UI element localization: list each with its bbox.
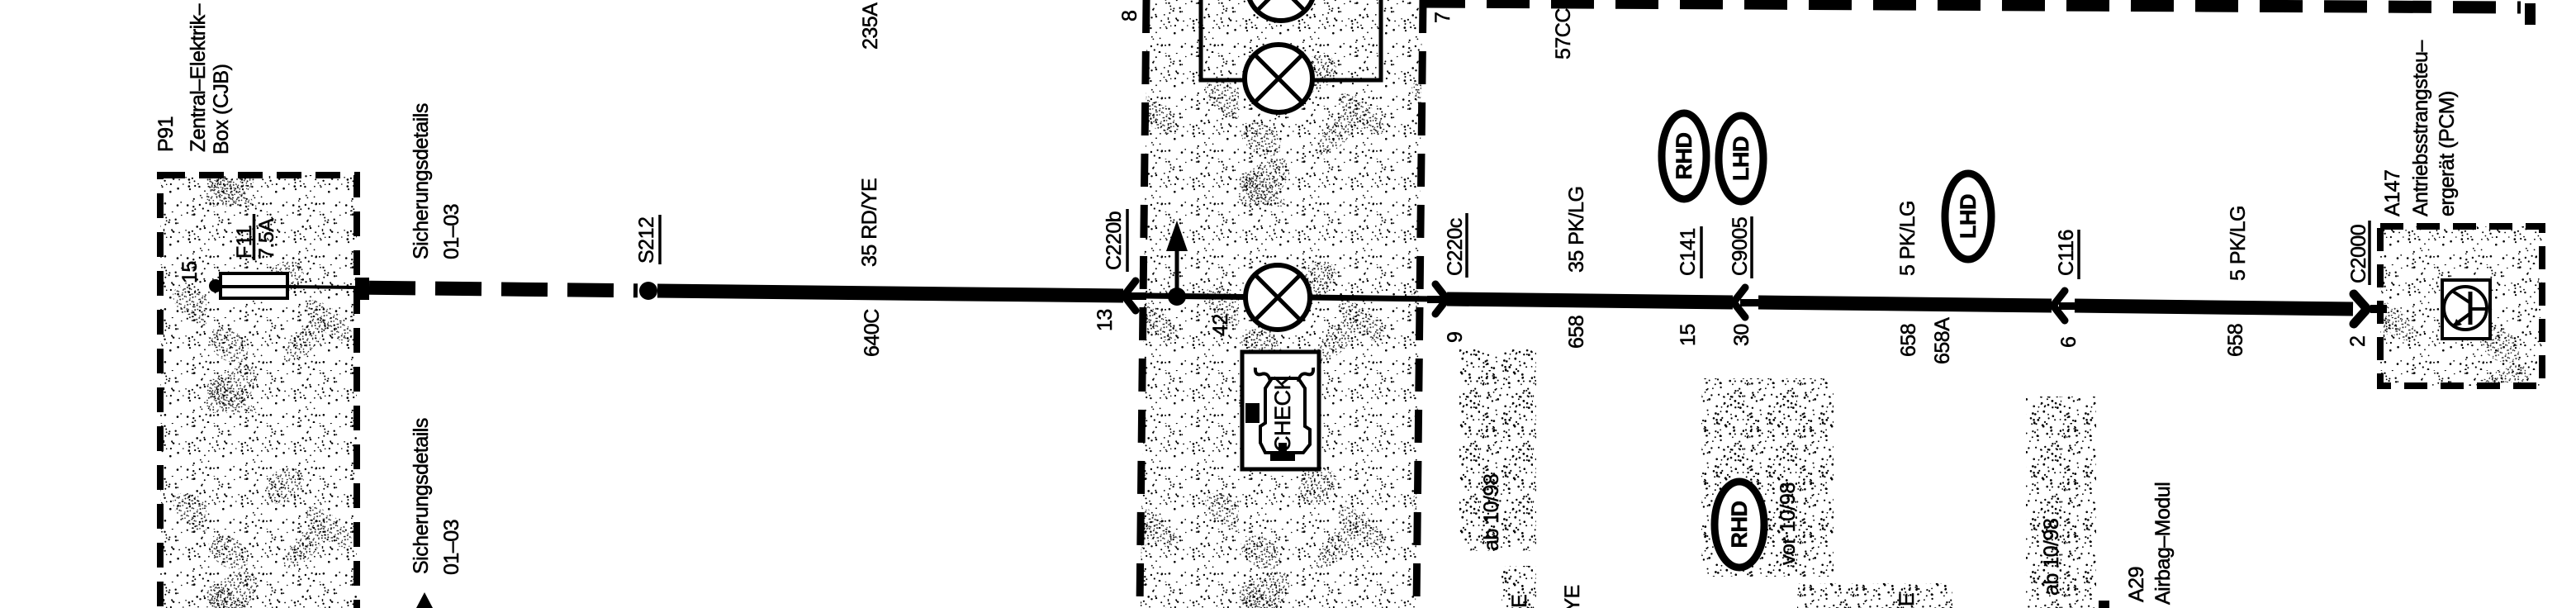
svg-text:6: 6 — [2057, 337, 2080, 348]
svg-text:5 PK/LG: 5 PK/LG — [2227, 206, 2250, 281]
svg-text:Sicherungsdetails: Sicherungsdetails — [410, 103, 433, 259]
svg-text:C116: C116 — [2055, 230, 2078, 276]
svg-text:A147: A147 — [2381, 170, 2404, 216]
svg-text:658: 658 — [1897, 324, 1920, 357]
svg-text:ergerät (PCM): ergerät (PCM) — [2436, 91, 2459, 216]
svg-text:CHECK: CHECK — [1270, 375, 1295, 452]
svg-text:RHD: RHD — [1672, 133, 1696, 180]
svg-text:5 PK/LG: 5 PK/LG — [1896, 201, 1919, 276]
svg-text:C2000: C2000 — [2347, 225, 2370, 283]
svg-text:S212: S212 — [635, 217, 658, 264]
svg-text:35 PK/LG: 35 PK/LG — [1565, 187, 1588, 273]
svg-text:235A: 235A — [859, 2, 882, 50]
svg-text:658: 658 — [1565, 316, 1588, 349]
svg-text:vor 10/98: vor 10/98 — [1777, 482, 1800, 565]
svg-text:C220c: C220c — [1444, 218, 1467, 276]
svg-text:13: 13 — [1093, 309, 1117, 331]
svg-text:658: 658 — [2224, 324, 2247, 357]
svg-text:ab 10/98: ab 10/98 — [2040, 519, 2063, 596]
svg-text:C9005: C9005 — [1729, 217, 1752, 276]
svg-text:9: 9 — [1444, 332, 1467, 343]
svg-text:658A: 658A — [1931, 317, 1954, 364]
svg-text:15: 15 — [178, 261, 202, 283]
svg-text:30: 30 — [1730, 324, 1753, 346]
svg-text:35 RD/YE: 35 RD/YE — [858, 178, 881, 267]
svg-text:Zentral–Elektrik–: Zentral–Elektrik– — [187, 3, 210, 152]
svg-text:42: 42 — [1209, 314, 1232, 336]
svg-text:8: 8 — [1118, 11, 1141, 21]
svg-text:/YE: /YE — [1561, 585, 1584, 608]
svg-text:ab 10/98: ab 10/98 — [1480, 474, 1503, 551]
svg-text:RHD: RHD — [1727, 501, 1752, 549]
svg-text:2: 2 — [2346, 336, 2370, 347]
svg-text:E: E — [1895, 593, 1919, 606]
svg-text:LHD: LHD — [1956, 194, 1981, 239]
svg-text:P91: P91 — [154, 116, 178, 152]
svg-text:57CC: 57CC — [1552, 8, 1575, 59]
svg-text:Box (CJB): Box (CJB) — [210, 64, 233, 154]
svg-text:01–03: 01–03 — [440, 204, 463, 259]
svg-text:15: 15 — [1677, 324, 1700, 346]
svg-text:LHD: LHD — [1729, 136, 1753, 181]
svg-text:Antriebsstrangsteu–: Antriebsstrangsteu– — [2409, 40, 2432, 216]
svg-text:7.5A: 7.5A — [255, 218, 278, 259]
svg-text:Sicherungsdetails: Sicherungsdetails — [410, 418, 433, 574]
svg-text:640C: 640C — [861, 309, 884, 357]
svg-text:A29: A29 — [2125, 567, 2148, 602]
svg-text:C220b: C220b — [1103, 211, 1126, 270]
svg-text:C141: C141 — [1677, 228, 1700, 276]
svg-text:01–03: 01–03 — [440, 520, 463, 575]
svg-text:7: 7 — [1431, 12, 1454, 23]
svg-text:YE: YE — [1508, 595, 1531, 608]
svg-text:Airbag–Modul: Airbag–Modul — [2151, 482, 2175, 605]
